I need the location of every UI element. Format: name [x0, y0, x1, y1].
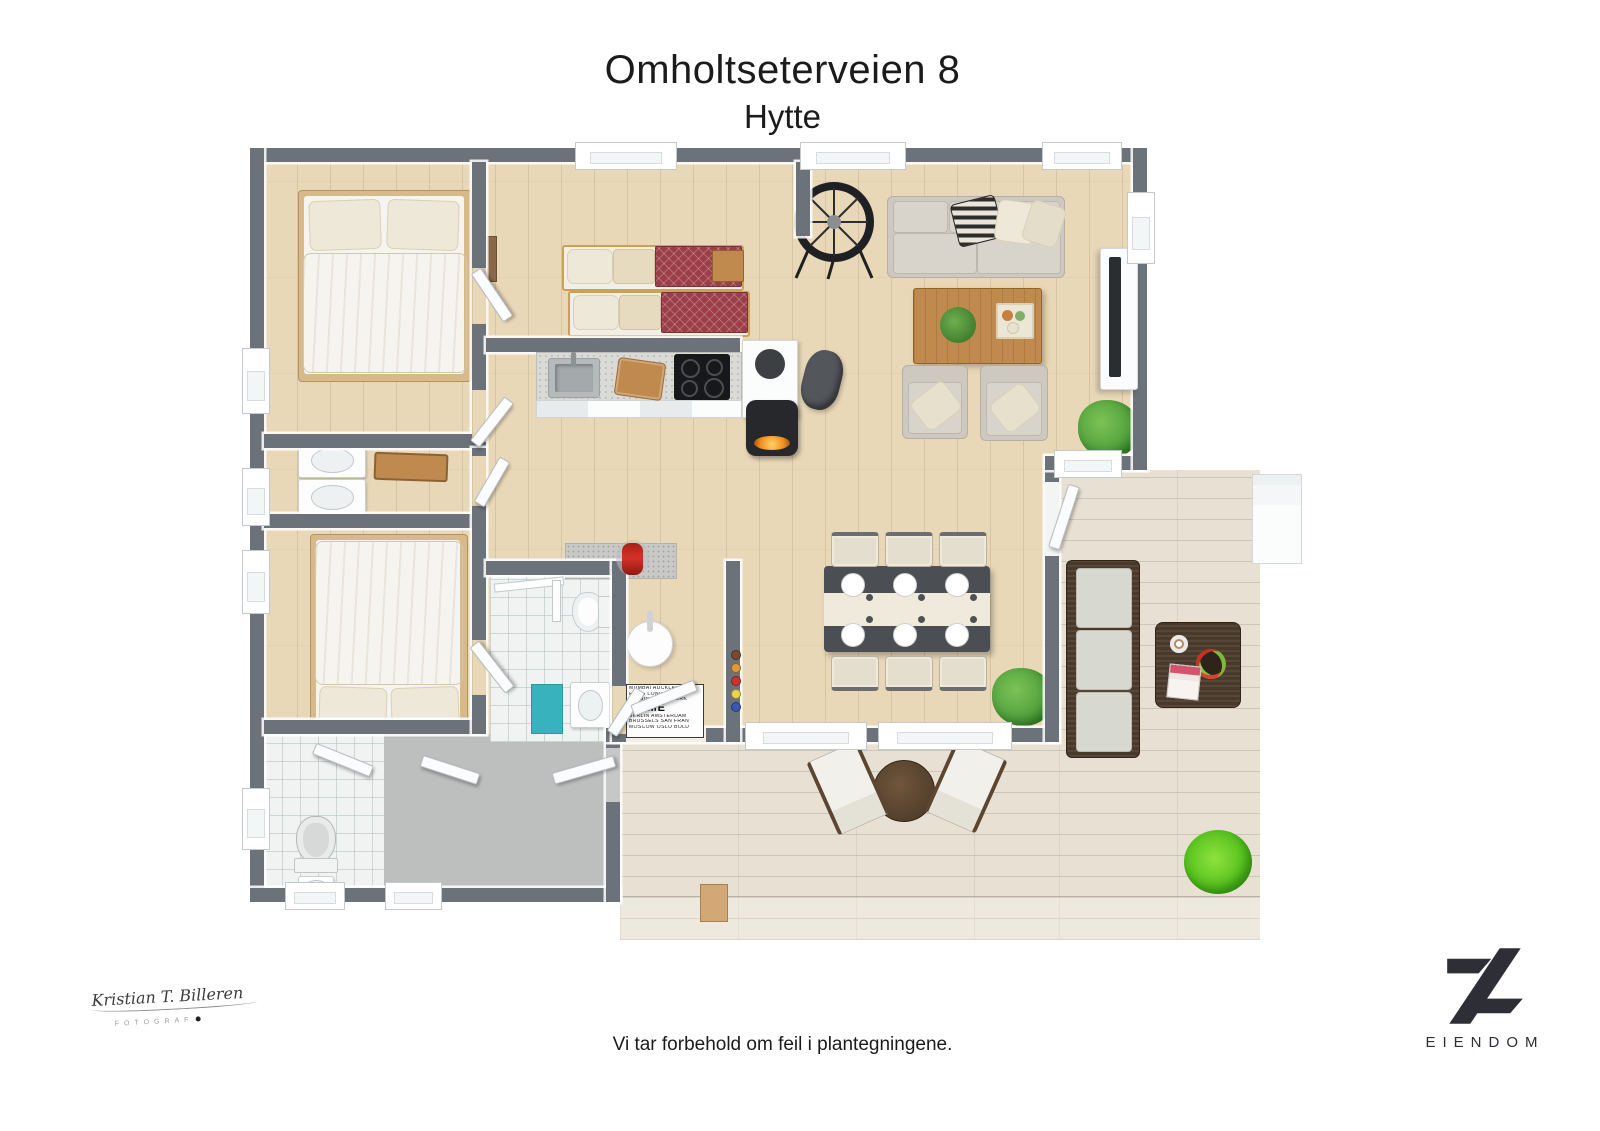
- window: [285, 882, 345, 910]
- wall-bedroom3-south: [264, 720, 486, 734]
- armchair: [980, 365, 1048, 441]
- window: [242, 468, 270, 526]
- deck-stairs: [1252, 474, 1302, 564]
- bed-double-frame: [298, 190, 472, 382]
- dining-chair: [831, 656, 879, 691]
- window-pane: [247, 371, 266, 402]
- toilet-tank: [294, 858, 338, 873]
- photographer-role: FOTOGRAF: [115, 1017, 194, 1028]
- wc-vanity: [298, 479, 366, 515]
- plate: [893, 623, 917, 647]
- window: [745, 722, 867, 750]
- window: [1054, 450, 1122, 478]
- cutting-board: [614, 357, 667, 401]
- coat-hook: [731, 663, 741, 673]
- wall-bedroom1-south: [264, 434, 486, 448]
- dining-chair: [831, 532, 879, 567]
- window-pane: [294, 892, 336, 905]
- dining-chair: [885, 656, 933, 691]
- wall-kitchen: [486, 338, 740, 352]
- glass: [970, 616, 977, 623]
- burner: [704, 378, 724, 398]
- disclaimer-text: Vi tar forbehold om feil i plantegningen…: [0, 1034, 1565, 1056]
- window: [1042, 142, 1122, 170]
- flue-circle: [755, 349, 785, 379]
- window-pane: [1054, 152, 1110, 165]
- stove-fire: [754, 436, 790, 450]
- blanket: [613, 249, 655, 284]
- outdoor-cushion: [1076, 692, 1132, 752]
- window: [1127, 192, 1155, 264]
- wall-bedroom2-east: [796, 162, 810, 236]
- wood-stove: [746, 400, 798, 456]
- brand-name: EIENDOM: [1405, 1034, 1565, 1051]
- plate: [945, 623, 969, 647]
- window-pane: [247, 809, 266, 838]
- tv-screen: [1109, 257, 1121, 377]
- fire-extinguisher: [616, 540, 650, 576]
- brand-logo: EIENDOM: [1405, 944, 1565, 1051]
- sink-basin: [555, 364, 593, 392]
- burner: [681, 380, 698, 397]
- coffee-table: [913, 288, 1042, 364]
- glass: [866, 616, 873, 623]
- plate: [841, 623, 865, 647]
- deck-step-block: [700, 884, 728, 922]
- window: [385, 882, 442, 910]
- window: [242, 348, 270, 414]
- kitchen-cabinet-fronts: [536, 400, 742, 418]
- coat-hook: [731, 676, 741, 686]
- bed-single-2: [568, 291, 750, 337]
- nightstand: [712, 250, 744, 282]
- table-stem: [647, 610, 653, 632]
- outdoor-cushion: [1076, 630, 1132, 690]
- bath-sink: [570, 682, 610, 728]
- z-logo-icon: [1443, 944, 1527, 1028]
- bed-double-frame: [310, 534, 468, 732]
- sofa-back-cushion: [893, 201, 948, 233]
- page: { "header": { "title": "Omholtseterveien…: [0, 0, 1600, 1131]
- tray-cup: [1015, 311, 1025, 321]
- kitchen-sink: [548, 358, 600, 398]
- window-pane: [247, 488, 266, 515]
- outdoor-coffee-table: [1155, 622, 1241, 708]
- pillow: [567, 249, 613, 284]
- sink-faucet: [571, 352, 576, 366]
- outdoor-cushion: [1076, 568, 1132, 628]
- pillow: [308, 199, 382, 251]
- coat-hook: [731, 689, 741, 699]
- toilet-tank: [598, 596, 612, 628]
- wall-mirror: [487, 236, 497, 282]
- glass: [866, 594, 873, 601]
- wash-basin: [311, 485, 354, 509]
- burner: [706, 359, 723, 376]
- bath-mat-teal: [531, 684, 563, 734]
- armchair: [902, 365, 968, 439]
- dining-chair: [885, 532, 933, 567]
- plate: [841, 573, 865, 597]
- glass: [918, 594, 925, 601]
- round-side-table: [627, 621, 673, 667]
- coat-hook: [731, 702, 741, 712]
- wall-north: [250, 148, 1147, 162]
- window-pane: [816, 152, 891, 165]
- toilet: [296, 816, 336, 864]
- burner: [681, 359, 700, 378]
- window-pane: [763, 732, 849, 745]
- flower-bouquet: [940, 307, 976, 343]
- window-pane: [1064, 460, 1112, 473]
- serving-tray: [996, 303, 1034, 339]
- table-runner: [824, 593, 990, 626]
- pillow: [573, 295, 619, 330]
- shower-screen: [552, 580, 561, 622]
- wood-tray: [374, 452, 449, 483]
- bedspread-red: [661, 292, 748, 333]
- doormat-row: MOSCOW OSLO BOLD: [629, 725, 701, 731]
- plate: [893, 573, 917, 597]
- tray-cup: [1007, 322, 1019, 334]
- coat-hook: [731, 650, 741, 660]
- dining-table: [824, 566, 990, 652]
- outdoor-sofa: [1066, 560, 1140, 758]
- window: [242, 788, 270, 850]
- glass: [970, 594, 977, 601]
- dining-chair: [939, 532, 987, 567]
- coffee-cup: [1170, 635, 1188, 653]
- tray-cup: [1002, 310, 1013, 321]
- window: [878, 722, 1012, 750]
- window-pane: [394, 892, 434, 905]
- window: [800, 142, 906, 170]
- grass-plant: [1184, 830, 1252, 894]
- dining-chair: [939, 656, 987, 691]
- cooktop: [674, 354, 730, 400]
- wash-basin: [578, 690, 604, 721]
- plate: [945, 573, 969, 597]
- floorplan: MUMBAI AUCKLAND PARIS LONDON HELSINKI NE…: [0, 0, 1600, 1131]
- blanket: [619, 295, 661, 330]
- pillow: [386, 199, 460, 251]
- window: [242, 550, 270, 614]
- extinguisher-body: [622, 543, 643, 575]
- duvet: [315, 541, 463, 685]
- window-pane: [590, 152, 662, 165]
- window-pane: [247, 572, 266, 602]
- wall-bath-north: [486, 561, 626, 575]
- magazine: [1166, 663, 1201, 700]
- wall-wc-south: [264, 514, 486, 528]
- window: [575, 142, 677, 170]
- tv-bench: [1100, 248, 1138, 390]
- sofa: [887, 196, 1065, 278]
- window-pane: [897, 732, 992, 745]
- glass: [918, 616, 925, 623]
- signature-dot: [195, 1016, 200, 1021]
- duvet: [303, 253, 467, 373]
- window-pane: [1132, 217, 1151, 251]
- wash-basin: [311, 448, 354, 472]
